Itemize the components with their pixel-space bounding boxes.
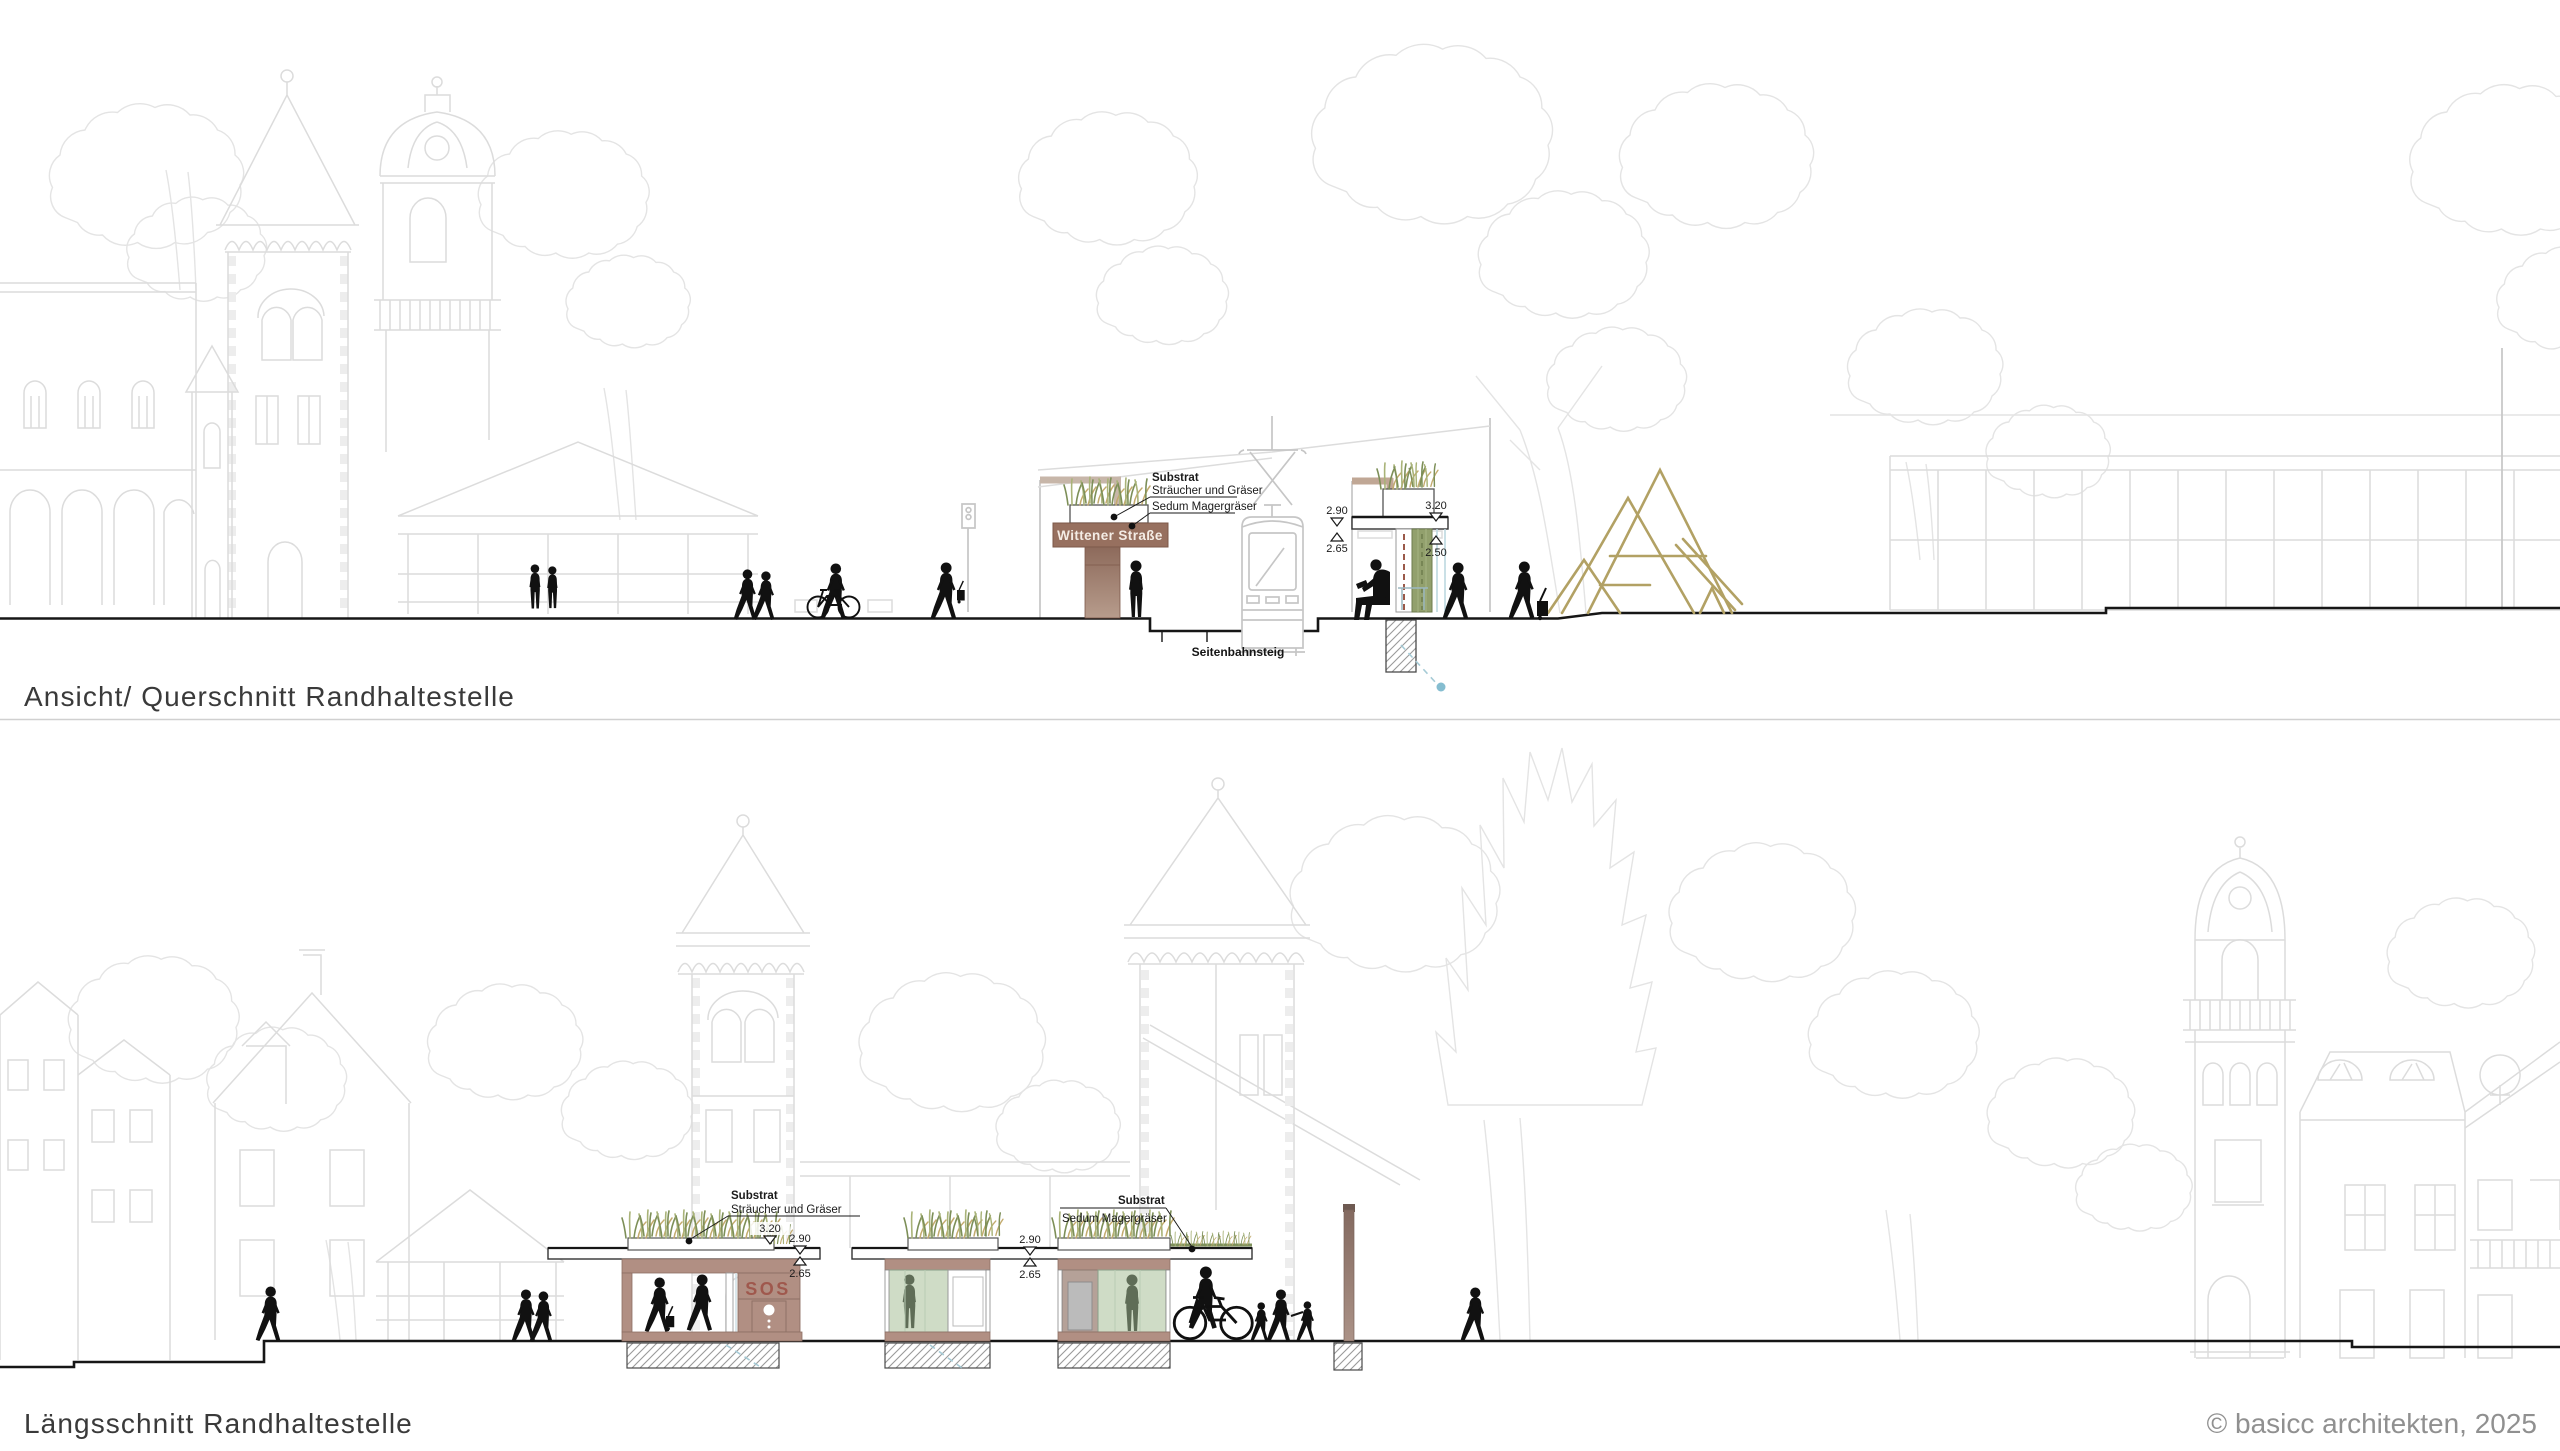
mast bbox=[1334, 1204, 1362, 1370]
playground-structure bbox=[1548, 470, 1742, 613]
ground-line bbox=[0, 1341, 2560, 1367]
fascia bbox=[1058, 1259, 1170, 1270]
totem-column bbox=[1085, 547, 1120, 618]
shelter-module bbox=[1052, 1210, 1174, 1368]
emergency-button bbox=[764, 1305, 775, 1316]
dimension-label: 3.20 bbox=[1425, 500, 1446, 512]
cyclist-silhouette bbox=[821, 563, 846, 618]
annotation-title: Substrat bbox=[1152, 472, 1199, 484]
fascia bbox=[885, 1259, 990, 1270]
dimension-label: 2.90 bbox=[1019, 1234, 1040, 1246]
annotation-title: Substrat bbox=[1118, 1195, 1165, 1207]
dimension-label: 2.90 bbox=[1326, 505, 1347, 517]
background-building-right bbox=[1830, 348, 2560, 610]
dimension-label: 2.65 bbox=[1019, 1269, 1040, 1281]
shelter-section bbox=[1352, 461, 1448, 692]
green-roof-planter bbox=[1064, 477, 1150, 523]
dimension-label: 2.50 bbox=[1425, 547, 1446, 559]
base-band bbox=[622, 1332, 802, 1341]
pedestrian-silhouette bbox=[645, 1277, 669, 1332]
glass-panel bbox=[888, 1270, 948, 1332]
pedestrian-silhouettes bbox=[529, 561, 1548, 621]
annotation-line: Sedum Magergräser bbox=[1062, 1213, 1167, 1225]
foundation-hatch bbox=[885, 1343, 990, 1368]
foundation-hatch bbox=[1334, 1343, 1362, 1370]
annotation-title: Substrat bbox=[731, 1190, 778, 1202]
pedestrian-silhouettes bbox=[256, 1286, 1485, 1341]
platform-label: Seitenbahnsteig bbox=[1192, 645, 1285, 659]
marker-dot bbox=[1437, 683, 1446, 692]
section-title-querschnitt: Ansicht/ Querschnitt Randhaltestelle bbox=[24, 681, 515, 712]
dimension-label: 2.90 bbox=[789, 1233, 810, 1245]
roof-dimension-label: 3.20 bbox=[759, 1223, 780, 1235]
station-totem: Wittener Straße bbox=[1053, 477, 1168, 618]
background-trees bbox=[68, 748, 2534, 1340]
sitting-person-silhouette bbox=[1354, 559, 1390, 620]
shelter-module bbox=[885, 1210, 1003, 1368]
fascia bbox=[622, 1259, 800, 1273]
architectural-sheet: Wittener Straße 2.90 2.65 3.20 bbox=[0, 0, 2560, 1451]
dimension-label: 2.65 bbox=[789, 1268, 810, 1280]
laengsschnitt-drawing: 3.20 SOS 2.90 2.65 Substrat Sträucher un… bbox=[0, 748, 2560, 1439]
dimension-label: 2.65 bbox=[1326, 543, 1347, 555]
annotation-line: Sträucher und Gräser bbox=[1152, 485, 1263, 497]
sos-label: SOS bbox=[745, 1279, 791, 1299]
foundation-hatch bbox=[1058, 1343, 1170, 1368]
sos-panel: SOS bbox=[738, 1273, 800, 1332]
drawing-canvas: Wittener Straße 2.90 2.65 3.20 bbox=[0, 0, 2560, 1451]
background-trees bbox=[49, 44, 2560, 613]
background-buildings bbox=[0, 778, 2560, 1360]
querschnitt-drawing: Wittener Straße 2.90 2.65 3.20 bbox=[0, 44, 2560, 719]
copyright-credit: © basicc architekten, 2025 bbox=[2207, 1408, 2537, 1439]
annotation-line: Sedum Magergräser bbox=[1152, 501, 1257, 513]
annotation-line: Sträucher und Gräser bbox=[731, 1204, 842, 1216]
shelter-roof-slab bbox=[1352, 517, 1448, 529]
background-buildings-left bbox=[0, 70, 975, 618]
station-sign-label: Wittener Straße bbox=[1057, 528, 1163, 543]
section-title-laengsschnitt: Längsschnitt Randhaltestelle bbox=[24, 1408, 413, 1439]
